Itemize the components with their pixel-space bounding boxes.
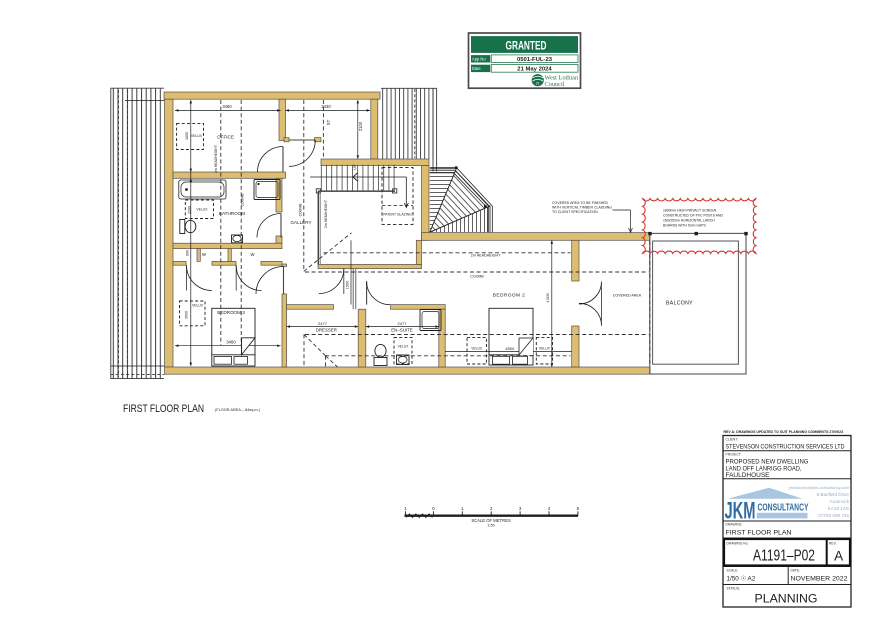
svg-text:(FLOOR AREA – 84sq.m.): (FLOOR AREA – 84sq.m.) bbox=[215, 408, 261, 412]
svg-text:07793 099 736: 07793 099 736 bbox=[818, 513, 849, 518]
svg-text:1/50 ☉ A2: 1/50 ☉ A2 bbox=[727, 576, 756, 583]
svg-text:2m HEADHEIGHT: 2m HEADHEIGHT bbox=[214, 145, 218, 173]
svg-text:A1191–P02: A1191–P02 bbox=[753, 548, 815, 565]
svg-text:STEVENSON CONSTRUCTION SERVI: STEVENSON CONSTRUCTION SERVICES LTD bbox=[726, 444, 845, 451]
svg-text:ST: ST bbox=[326, 119, 331, 125]
svg-text:PATENT GLAZING: PATENT GLAZING bbox=[383, 213, 412, 217]
svg-text:4,500: 4,500 bbox=[546, 293, 550, 303]
svg-text:REV A: DRAWINGS UPDATED TO SUI: REV A: DRAWINGS UPDATED TO SUIT PLANNING… bbox=[724, 430, 844, 434]
svg-text:VELUX: VELUX bbox=[192, 304, 204, 308]
svg-text:COVERED AREA TO BE FINISHED: COVERED AREA TO BE FINISHED bbox=[552, 201, 609, 205]
svg-text:4500: 4500 bbox=[505, 346, 515, 351]
svg-text:2477: 2477 bbox=[318, 321, 328, 326]
svg-text:EN–SUITE: EN–SUITE bbox=[391, 328, 413, 333]
svg-text:VELUX: VELUX bbox=[196, 208, 208, 212]
svg-text:3460: 3460 bbox=[226, 340, 236, 345]
svg-text:DRESSER: DRESSER bbox=[316, 328, 337, 333]
svg-text:A: A bbox=[834, 549, 843, 564]
svg-text:jmmalcolm@jkm-consultancy.com: jmmalcolm@jkm-consultancy.com bbox=[788, 485, 850, 490]
svg-text:2m HEADHEIGHT: 2m HEADHEIGHT bbox=[471, 254, 501, 258]
svg-text:GRANTED: GRANTED bbox=[506, 39, 547, 53]
svg-text:VELUX: VELUX bbox=[539, 347, 551, 351]
svg-text:BATHROOM: BATHROOM bbox=[219, 211, 245, 216]
svg-text:2430: 2430 bbox=[321, 104, 331, 109]
svg-text:3460: 3460 bbox=[222, 104, 232, 109]
svg-text:CLIENT:: CLIENT: bbox=[726, 438, 738, 442]
svg-text:STATUS:: STATUS: bbox=[727, 587, 741, 591]
svg-text:COOMB: COOMB bbox=[241, 193, 245, 207]
svg-text:2100: 2100 bbox=[358, 121, 363, 131]
svg-text:Council: Council bbox=[545, 81, 565, 88]
svg-text:1500: 1500 bbox=[346, 281, 350, 289]
svg-text:COOMB: COOMB bbox=[470, 275, 484, 279]
svg-text:8 Banfield Drive: 8 Banfield Drive bbox=[817, 492, 850, 497]
svg-text:GALLERY: GALLERY bbox=[290, 220, 311, 225]
svg-text:REV:: REV: bbox=[829, 541, 837, 545]
svg-text:0501-FUL-23: 0501-FUL-23 bbox=[517, 57, 553, 63]
svg-text:21: 21 bbox=[536, 82, 540, 86]
svg-text:2m HEADHEIGHT: 2m HEADHEIGHT bbox=[324, 200, 328, 228]
svg-text:VELUX: VELUX bbox=[471, 347, 483, 351]
svg-text:W: W bbox=[202, 252, 206, 257]
svg-text:KA18 1AS: KA18 1AS bbox=[828, 506, 849, 511]
svg-text:BEDROOM 3: BEDROOM 3 bbox=[217, 310, 245, 315]
svg-text:BALCONY: BALCONY bbox=[666, 301, 693, 307]
svg-text:PLANNING: PLANNING bbox=[755, 593, 818, 605]
svg-text:Date: Date bbox=[472, 66, 481, 71]
svg-text:COOMB: COOMB bbox=[299, 203, 303, 217]
svg-text:App No: App No bbox=[472, 57, 486, 62]
svg-text:VELUX: VELUX bbox=[191, 134, 203, 138]
svg-text:2200: 2200 bbox=[188, 206, 192, 214]
svg-text:DRAWING No:: DRAWING No: bbox=[727, 541, 749, 545]
svg-text:NOVEMBER 2022: NOVEMBER 2022 bbox=[791, 576, 849, 583]
svg-text:JKM: JKM bbox=[725, 497, 756, 524]
svg-text:OFFICE: OFFICE bbox=[217, 135, 234, 140]
svg-text:FAULDHOUSE: FAULDHOUSE bbox=[726, 472, 770, 479]
svg-text:600: 600 bbox=[186, 250, 190, 256]
svg-text:2477: 2477 bbox=[398, 321, 408, 326]
svg-text:W: W bbox=[251, 252, 255, 257]
svg-text:150x25mm HORIZONTAL LARCH: 150x25mm HORIZONTAL LARCH bbox=[663, 219, 715, 223]
svg-text:1800mm HIGH PRIVACY SCREEN: 1800mm HIGH PRIVACY SCREEN bbox=[663, 209, 717, 213]
svg-text:DRAWING:: DRAWING: bbox=[726, 523, 743, 527]
svg-text:TO CLIENT SPECIFICATION: TO CLIENT SPECIFICATION bbox=[552, 210, 598, 214]
svg-text:FIRST FLOOR PLAN: FIRST FLOOR PLAN bbox=[123, 403, 204, 415]
svg-text:CONSTRUCTED OF PVC POSTS AND: CONSTRUCTED OF PVC POSTS AND bbox=[663, 214, 723, 218]
svg-text:SCALE:: SCALE: bbox=[727, 569, 739, 573]
svg-text:1:50: 1:50 bbox=[487, 524, 494, 528]
svg-text:21 May 2024: 21 May 2024 bbox=[517, 67, 552, 73]
svg-text:CONSULTANCY: CONSULTANCY bbox=[758, 502, 809, 513]
svg-text:COVERED AREA: COVERED AREA bbox=[613, 294, 642, 298]
svg-text:UP: UP bbox=[353, 164, 357, 170]
svg-text:WITH VERTICAL TIMBER CLADDING: WITH VERTICAL TIMBER CLADDING bbox=[552, 206, 612, 210]
svg-text:1600: 1600 bbox=[185, 132, 189, 140]
svg-text:VELUX: VELUX bbox=[398, 345, 410, 349]
svg-text:FIRST FLOOR PLAN: FIRST FLOOR PLAN bbox=[726, 529, 792, 536]
svg-text:DATE:: DATE: bbox=[791, 569, 801, 573]
svg-text:SCALE OF METRES: SCALE OF METRES bbox=[471, 518, 511, 523]
svg-text:BOARDS WITH 5mm GAPS: BOARDS WITH 5mm GAPS bbox=[663, 224, 707, 228]
svg-text:3500: 3500 bbox=[185, 311, 189, 319]
svg-text:PROPOSED NEW DWELLING: PROPOSED NEW DWELLING bbox=[726, 458, 809, 465]
svg-text:Cumnock: Cumnock bbox=[830, 499, 850, 504]
svg-text:PROJECT:: PROJECT: bbox=[726, 452, 742, 456]
svg-text:BEDROOM 2: BEDROOM 2 bbox=[493, 292, 525, 298]
